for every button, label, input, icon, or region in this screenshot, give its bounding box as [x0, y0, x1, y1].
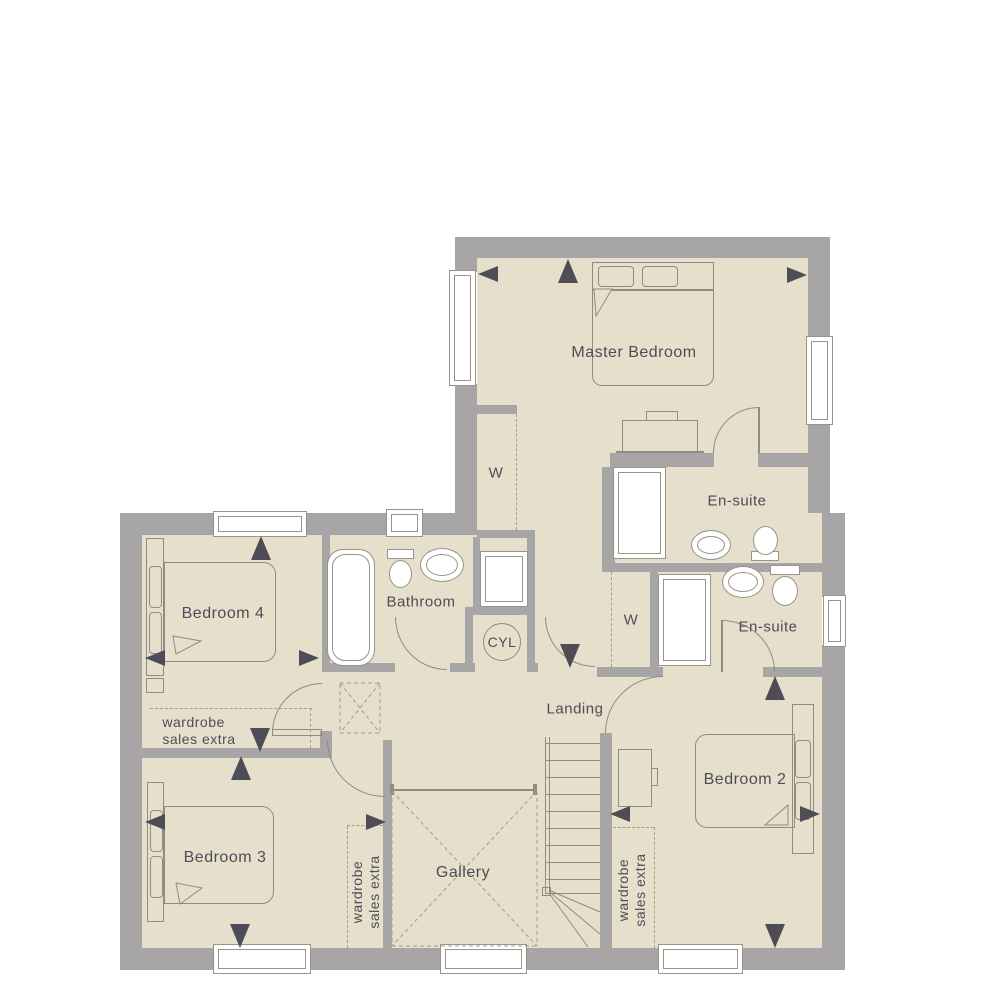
dimension-arrow-down-icon: [765, 924, 785, 948]
shower-tray: [663, 579, 706, 661]
toilet: [753, 526, 778, 555]
floor-plan: Master Bedroom En-suite En-suite Bathroo…: [0, 0, 1000, 1000]
gallery-edge: [392, 789, 537, 791]
wall: [120, 513, 142, 970]
wardrobe-note-line1: wardrobe: [349, 855, 366, 928]
dimension-arrow-right-icon: [800, 806, 820, 822]
wall: [527, 537, 535, 607]
wardrobe-note-line2: sales extra: [162, 731, 235, 748]
door-leaf: [721, 620, 723, 672]
dimension-arrow-up-icon: [558, 259, 578, 283]
bed-headboard: [792, 704, 814, 854]
wall: [455, 384, 477, 535]
wardrobe-note-line1: wardrobe: [615, 853, 632, 926]
toilet: [389, 560, 412, 588]
dimension-arrow-down-icon: [230, 924, 250, 948]
bed-pillow: [150, 856, 163, 898]
bed-pillow: [149, 566, 162, 608]
window: [213, 511, 307, 537]
wall: [120, 748, 327, 758]
shower-tray: [485, 556, 523, 602]
bath-inner: [332, 554, 370, 661]
dresser-top: [646, 411, 678, 421]
wall: [597, 667, 663, 677]
window: [449, 270, 476, 386]
wall: [477, 405, 517, 414]
dimension-arrow-left-icon: [610, 806, 630, 822]
wall: [600, 733, 612, 948]
wardrobe-note-line2: sales extra: [632, 853, 649, 926]
dimension-arrow-right-icon: [299, 650, 319, 666]
wardrobe-top-bedroom2: [613, 827, 654, 828]
window: [213, 944, 311, 974]
room-label-bathroom: Bathroom: [386, 594, 455, 611]
wall: [822, 645, 845, 970]
room-label-bedroom-3: Bedroom 3: [184, 849, 267, 867]
room-label-landing: Landing: [547, 701, 604, 718]
gallery-edge-tick: [390, 784, 394, 795]
desk: [618, 749, 652, 807]
room-label-gallery: Gallery: [436, 864, 490, 882]
wardrobe-front-master: [516, 414, 517, 530]
bed-pillow: [795, 740, 811, 778]
dimension-arrow-right-icon: [787, 267, 807, 283]
wall: [455, 237, 830, 258]
wall: [610, 453, 714, 467]
wardrobe-note-line2: sales extra: [366, 855, 383, 928]
window: [386, 509, 423, 537]
stair-newel: [542, 887, 551, 896]
room-label-bedroom-4: Bedroom 4: [182, 605, 265, 623]
dresser: [622, 420, 698, 452]
bed-pillow: [642, 266, 678, 287]
bed-headboard: [147, 782, 164, 922]
wardrobe-front-bedroom3: [347, 826, 348, 948]
window: [658, 944, 743, 974]
dimension-arrow-up-icon: [231, 756, 251, 780]
window: [806, 336, 833, 425]
dresser-base: [616, 451, 704, 453]
wall: [473, 607, 535, 615]
dimension-arrow-down-icon: [560, 644, 580, 668]
gallery-edge-tick: [533, 784, 537, 795]
wall: [808, 258, 830, 338]
wardrobe-label-ensuite2: W: [624, 612, 639, 629]
dimension-arrow-down-icon: [250, 728, 270, 752]
room-label-ensuite-2: En-suite: [738, 619, 797, 636]
bed-pillow: [598, 266, 634, 287]
window: [440, 944, 527, 974]
dimension-arrow-left-icon: [145, 650, 165, 666]
toilet-cistern: [770, 565, 800, 575]
wardrobe-note-bedroom4: wardrobe sales extra: [162, 714, 235, 748]
wardrobe-note-line1: wardrobe: [162, 714, 235, 731]
dimension-arrow-left-icon: [478, 266, 498, 282]
wardrobe-front-bedroom2: [654, 827, 655, 948]
wall: [822, 513, 845, 597]
door-leaf: [758, 407, 760, 453]
shower-tray: [618, 472, 661, 554]
dimension-arrow-right-icon: [366, 814, 386, 830]
cylinder-label: CYL: [488, 634, 517, 650]
wall: [650, 572, 658, 667]
wall: [465, 607, 473, 672]
wardrobe-front-ensuite2: [611, 572, 612, 667]
basin-bowl: [728, 572, 758, 592]
toilet: [772, 576, 798, 606]
wall: [473, 537, 480, 607]
wall: [527, 663, 538, 672]
basin-bowl: [697, 536, 725, 554]
dimension-arrow-up-icon: [251, 536, 271, 560]
bed: [592, 290, 714, 386]
room-label-ensuite-master: En-suite: [707, 493, 766, 510]
toilet-cistern: [387, 549, 414, 559]
dimension-arrow-left-icon: [145, 814, 165, 830]
room-label-bedroom-2: Bedroom 2: [704, 771, 787, 789]
wall: [758, 453, 808, 467]
wardrobe-label-master: W: [489, 465, 504, 482]
basin-bowl: [426, 554, 458, 576]
window: [823, 595, 846, 647]
wall: [808, 423, 830, 513]
door-leaf: [272, 729, 322, 736]
bed-pillow: [149, 612, 162, 654]
wardrobe-note-bedroom3: wardrobe sales extra: [349, 855, 383, 928]
desk-chair: [651, 768, 658, 786]
nightstand: [146, 678, 164, 693]
dimension-arrow-up-icon: [765, 676, 785, 700]
room-label-master-bedroom: Master Bedroom: [571, 344, 696, 362]
wardrobe-note-bedroom2: wardrobe sales extra: [615, 853, 649, 926]
